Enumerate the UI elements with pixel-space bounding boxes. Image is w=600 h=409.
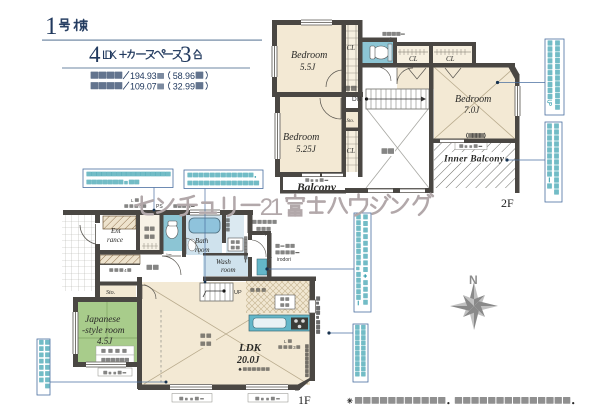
svg-text:Sto.: Sto.	[106, 290, 115, 296]
svg-text:UP: UP	[234, 290, 242, 296]
svg-text:DN: DN	[352, 96, 362, 103]
svg-text:4.5J: 4.5J	[97, 336, 113, 346]
svg-text:UP: UP	[546, 99, 552, 106]
svg-text:3: 3	[180, 42, 192, 67]
svg-text:Wash: Wash	[216, 258, 231, 266]
svg-text:CL: CL	[409, 55, 418, 63]
svg-text:-style room: -style room	[82, 326, 125, 336]
svg-text:N: N	[469, 273, 478, 287]
svg-text:20.0J: 20.0J	[236, 355, 261, 366]
svg-text:2F: 2F	[501, 196, 514, 210]
svg-text:PS: PS	[156, 204, 163, 210]
svg-text:32.99: 32.99	[173, 82, 195, 92]
svg-text:LDK: LDK	[238, 342, 262, 354]
svg-text:1F: 1F	[298, 393, 311, 407]
svg-text:109.07: 109.07	[130, 82, 157, 92]
svg-text:CL: CL	[347, 147, 356, 155]
svg-text:irodori: irodori	[277, 257, 291, 263]
svg-text:5.25J: 5.25J	[296, 144, 317, 154]
svg-text:room: room	[195, 246, 210, 254]
svg-text:CL: CL	[347, 44, 356, 52]
svg-text:Bedroom: Bedroom	[455, 94, 491, 105]
svg-text:Bedroom: Bedroom	[283, 132, 319, 143]
svg-text:7.0J: 7.0J	[464, 105, 480, 115]
svg-text:5.5J: 5.5J	[300, 62, 316, 72]
svg-text:1: 1	[45, 13, 58, 40]
svg-text:room: room	[221, 266, 236, 274]
svg-text:Bedroom: Bedroom	[291, 50, 327, 61]
svg-text:21: 21	[260, 194, 284, 221]
svg-text:Bath: Bath	[195, 237, 209, 245]
svg-text:Sto.: Sto.	[347, 119, 355, 124]
svg-text:Japanese: Japanese	[85, 315, 120, 325]
svg-text:rance: rance	[107, 236, 123, 244]
svg-text:CL: CL	[446, 55, 455, 63]
svg-text:4: 4	[89, 42, 101, 67]
svg-text:58.96: 58.96	[173, 71, 195, 81]
svg-text:Ent: Ent	[110, 227, 122, 235]
svg-text:LDK: LDK	[102, 48, 117, 62]
svg-text:194.93: 194.93	[130, 71, 157, 81]
svg-text:Inner Balcony: Inner Balcony	[443, 155, 505, 165]
